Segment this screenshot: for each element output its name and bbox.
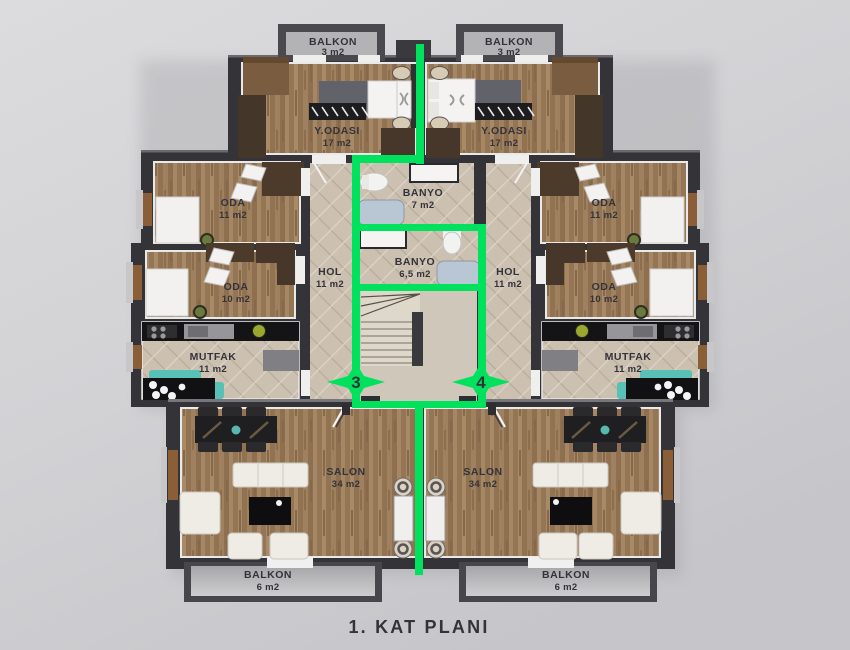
- svg-text:HOL: HOL: [318, 266, 342, 278]
- svg-text:11 m2: 11 m2: [590, 210, 618, 221]
- svg-text:34 m2: 34 m2: [332, 479, 360, 490]
- svg-text:10 m2: 10 m2: [222, 294, 250, 305]
- svg-text:BANYO: BANYO: [395, 256, 435, 268]
- svg-text:1. KAT PLANI: 1. KAT PLANI: [348, 617, 489, 637]
- svg-text:BANYO: BANYO: [403, 187, 443, 199]
- svg-text:3: 3: [351, 373, 360, 392]
- svg-text:11 m2: 11 m2: [316, 279, 344, 290]
- svg-text:BALKON: BALKON: [542, 569, 590, 581]
- svg-text:7 m2: 7 m2: [412, 200, 435, 211]
- svg-text:3 m2: 3 m2: [498, 47, 521, 58]
- svg-text:Y.ODASI: Y.ODASI: [481, 125, 527, 137]
- svg-text:17 m2: 17 m2: [323, 138, 351, 149]
- svg-text:ODA: ODA: [592, 281, 617, 293]
- svg-text:ODA: ODA: [224, 281, 249, 293]
- svg-text:11 m2: 11 m2: [614, 364, 642, 375]
- svg-text:ODA: ODA: [221, 197, 246, 209]
- svg-text:SALON: SALON: [463, 466, 502, 478]
- svg-text:10 m2: 10 m2: [590, 294, 618, 305]
- svg-text:34 m2: 34 m2: [469, 479, 497, 490]
- svg-text:MUTFAK: MUTFAK: [190, 351, 237, 363]
- svg-text:MUTFAK: MUTFAK: [605, 351, 652, 363]
- svg-text:11 m2: 11 m2: [494, 279, 522, 290]
- svg-text:3 m2: 3 m2: [322, 47, 345, 58]
- svg-text:4: 4: [476, 373, 486, 392]
- svg-text:6,5 m2: 6,5 m2: [399, 269, 430, 280]
- svg-text:11 m2: 11 m2: [199, 364, 227, 375]
- svg-text:ODA: ODA: [592, 197, 617, 209]
- svg-text:11 m2: 11 m2: [219, 210, 247, 221]
- svg-text:BALKON: BALKON: [244, 569, 292, 581]
- svg-text:HOL: HOL: [496, 266, 520, 278]
- svg-text:SALON: SALON: [326, 466, 365, 478]
- svg-text:6 m2: 6 m2: [257, 582, 280, 593]
- svg-text:6 m2: 6 m2: [555, 582, 578, 593]
- svg-text:Y.ODASI: Y.ODASI: [314, 125, 360, 137]
- svg-text:17 m2: 17 m2: [490, 138, 518, 149]
